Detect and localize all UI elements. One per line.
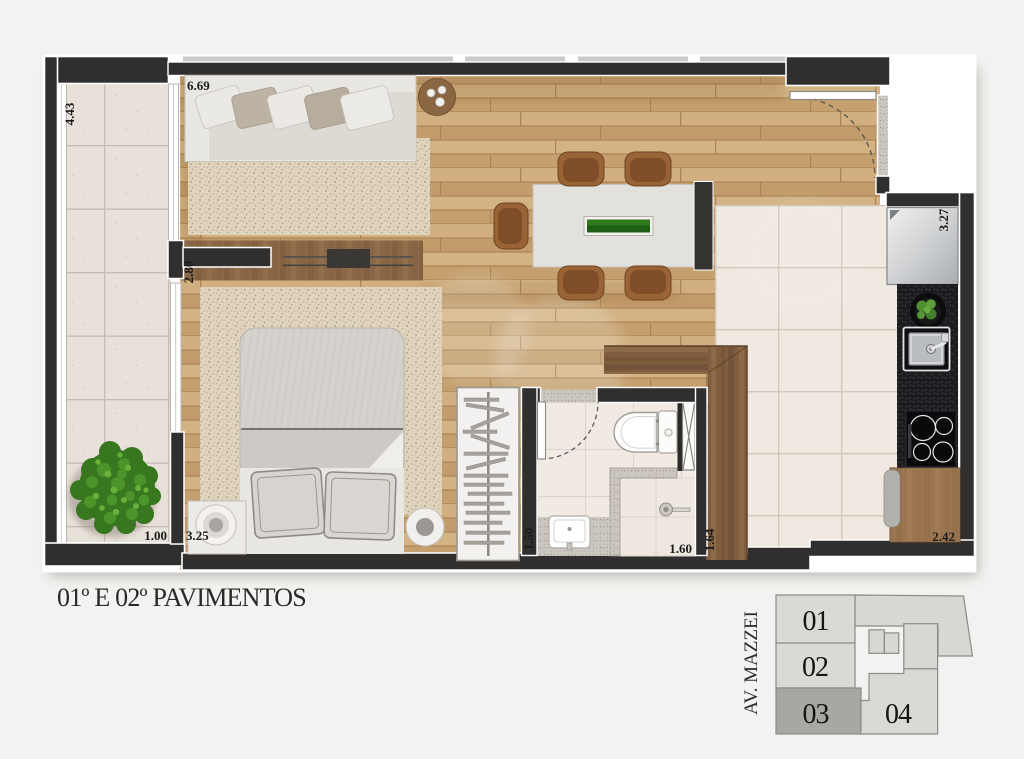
svg-text:AV. MAZZEI: AV. MAZZEI	[741, 611, 762, 715]
svg-text:1.60: 1.60	[669, 541, 692, 556]
svg-text:2.80: 2.80	[181, 261, 196, 284]
svg-text:02: 02	[802, 652, 828, 683]
svg-text:6.69: 6.69	[187, 78, 210, 93]
svg-text:4.43: 4.43	[62, 102, 77, 125]
svg-text:1.00: 1.00	[144, 528, 167, 543]
svg-text:1.64: 1.64	[702, 528, 717, 551]
svg-text:01º E 02º PAVIMENTOS: 01º E 02º PAVIMENTOS	[57, 583, 306, 612]
svg-text:2.42: 2.42	[932, 529, 955, 544]
svg-text:3.25: 3.25	[186, 528, 209, 543]
svg-text:1.50: 1.50	[521, 528, 536, 551]
svg-text:04: 04	[885, 699, 912, 730]
svg-text:3.27: 3.27	[936, 208, 951, 231]
svg-text:03: 03	[803, 699, 829, 730]
svg-text:01: 01	[803, 606, 829, 637]
